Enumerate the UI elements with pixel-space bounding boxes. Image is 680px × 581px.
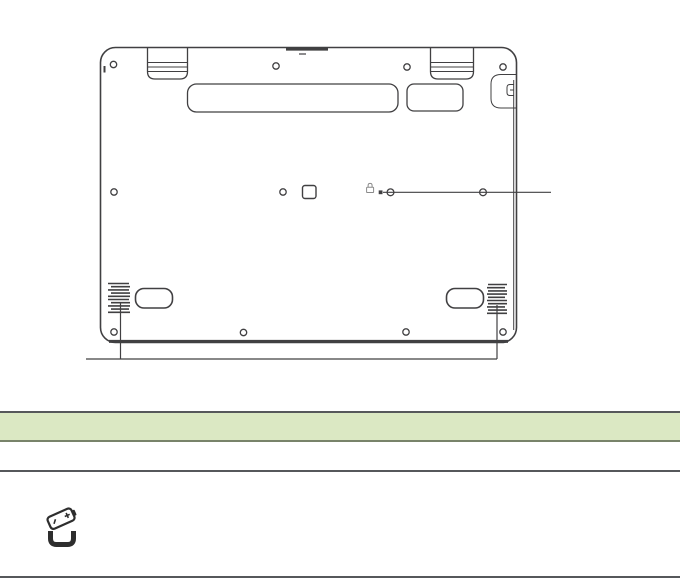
table-header-row [0, 411, 680, 442]
battery-icon [43, 505, 81, 549]
table-row [0, 442, 680, 472]
table-row [0, 472, 680, 578]
battery-minus-mark [53, 519, 57, 524]
battery-bay-tray [51, 531, 74, 545]
legend-table [0, 0, 680, 581]
battery-plus-mark [64, 512, 71, 519]
battery-cell [47, 506, 79, 530]
